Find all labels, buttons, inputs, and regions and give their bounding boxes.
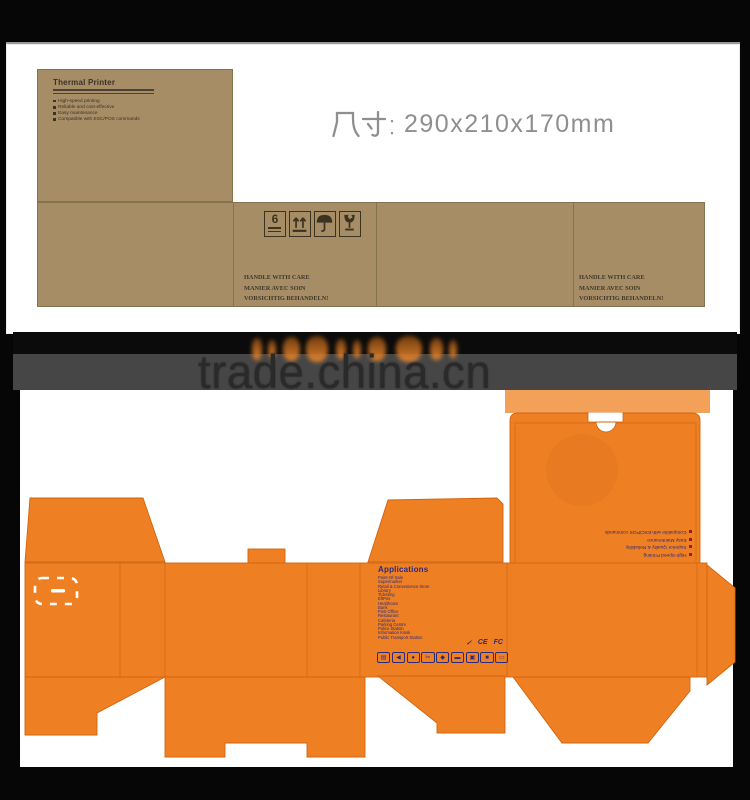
icon-glyph: ● — [411, 655, 415, 661]
square-bullet-icon — [53, 100, 56, 103]
top-left-flap — [25, 498, 165, 562]
feature-label: Reliable and cost-effective — [58, 105, 114, 110]
care-text-block: HANDLE WITH CARE MANIER AVEC SOIN VORSIC… — [579, 273, 679, 305]
icon-glyph: ■ — [485, 655, 489, 661]
panel-divider — [376, 203, 377, 306]
square-bullet-icon — [689, 530, 692, 533]
stacking-limit-number: 6 — [265, 212, 285, 226]
box-feature-label: Compatible with ESC/POS commands — [605, 529, 687, 534]
applications-list: Point-Of-Sale Supermarket Retail & Conve… — [378, 576, 508, 640]
kraft-top-panel: Thermal Printer High-speed printing Reli… — [37, 69, 233, 202]
icon-glyph: ▭ — [499, 655, 505, 661]
title-rule — [53, 93, 154, 94]
bottom-flap-a — [378, 676, 505, 733]
speaker-icon: ◀ — [392, 652, 405, 663]
scissors-icon: ✂ — [421, 652, 434, 663]
product-image: Thermal Printer High-speed printing Reli… — [0, 0, 750, 800]
fragile-icon — [339, 211, 361, 237]
feature-label: High-speed printing — [58, 99, 100, 104]
pen-icon: ◆ — [436, 652, 449, 663]
main-band — [25, 563, 707, 677]
thermal-feature-list: High-speed printing Reliable and cost-ef… — [53, 98, 140, 123]
square-bullet-icon — [53, 112, 56, 115]
fcc-mark: FC — [494, 639, 503, 647]
box-features-block-rotated: High-Speed Printing Superior Quality & R… — [580, 526, 692, 558]
size-label-cjk-glyphs — [332, 106, 398, 142]
square-bullet-icon — [53, 118, 56, 121]
feature-label: Compatible with ESC/POS commands — [58, 117, 140, 122]
lid-smudge — [546, 434, 618, 506]
care-line: HANDLE WITH CARE — [579, 273, 679, 284]
care-line: VORSICHTIG BEHANDELN! — [579, 294, 679, 305]
applications-block: Applications Point-Of-Sale Supermarket R… — [378, 565, 508, 640]
pos-receipt-icon: ▤ — [377, 652, 390, 663]
care-text-block: HANDLE WITH CARE MANIER AVEC SOIN VORSIC… — [244, 273, 344, 305]
care-line: MANIER AVEC SOIN — [244, 284, 344, 295]
box-feature-label: High-Speed Printing — [644, 552, 687, 557]
box-feature-row: High-Speed Printing — [580, 551, 692, 559]
application-icons-row: ▤ ◀ ● ✂ ◆ ▬ ▣ ■ ▭ — [377, 652, 508, 663]
title-rule — [53, 89, 154, 91]
stack-bar — [268, 231, 281, 233]
kraft-bottom-band: 6 — [37, 202, 705, 307]
care-line: MANIER AVEC SOIN — [579, 284, 679, 295]
box-feature-row: Easy Maintenance — [580, 536, 692, 544]
glue-flap — [707, 565, 735, 685]
box-feature-label: Easy Maintenance — [647, 537, 686, 542]
icon-glyph: ▤ — [381, 655, 387, 661]
square-bullet-icon — [689, 553, 692, 556]
icon-glyph: ▬ — [455, 655, 461, 661]
box-feature-row: Compatible with ESC/POS commands — [580, 528, 692, 536]
handling-icons-row: 6 — [264, 211, 361, 237]
size-value: 290x210x170mm — [404, 106, 615, 142]
bottom-left-flap — [25, 677, 165, 735]
orange-dieline-drawing — [0, 412, 750, 767]
orange-glow-strip — [505, 390, 710, 412]
panel-divider — [233, 203, 234, 306]
feature-row: Compatible with ESC/POS commands — [53, 117, 140, 123]
box-feature-row: Superior Quality & Reliability — [580, 543, 692, 551]
cash-register-icon: ▣ — [466, 652, 479, 663]
display-icon: ▭ — [495, 652, 508, 663]
square-bullet-icon — [689, 545, 692, 548]
panel-divider — [573, 203, 574, 306]
certification-marks: ✓ CE FC — [466, 639, 503, 647]
small-tab — [248, 549, 285, 563]
kraft-dieline-card: Thermal Printer High-speed printing Reli… — [6, 42, 740, 334]
top-middle-flap — [368, 498, 503, 562]
icon-glyph: ◀ — [396, 655, 401, 661]
square-bullet-icon — [689, 538, 692, 541]
icon-glyph: ▣ — [469, 655, 475, 661]
square-bullet-icon — [53, 106, 56, 109]
box-size-label: 290x210x170mm — [332, 106, 615, 142]
computer-icon: ■ — [480, 652, 493, 663]
care-line: VORSICHTIG BEHANDELN! — [244, 294, 344, 305]
printer-icon: ● — [407, 652, 420, 663]
stacking-limit-icon: 6 — [264, 211, 286, 237]
box-feature-label: Superior Quality & Reliability — [626, 544, 687, 549]
feature-label: Easy maintenance — [58, 111, 97, 116]
keep-dry-icon — [314, 211, 336, 237]
stack-bar — [268, 227, 281, 229]
thermal-printer-title: Thermal Printer — [53, 78, 115, 87]
monitor-icon: ▬ — [451, 652, 464, 663]
icon-glyph: ✂ — [425, 655, 430, 661]
icon-glyph: ◆ — [440, 655, 445, 661]
watermark-band: trade.china.cn — [0, 332, 750, 412]
check-mark: ✓ — [466, 639, 472, 647]
this-way-up-icon — [289, 211, 311, 237]
watermark-text: trade.china.cn — [198, 348, 491, 395]
care-line: HANDLE WITH CARE — [244, 273, 344, 284]
bottom-middle-panel — [165, 677, 365, 757]
applications-title: Applications — [378, 565, 508, 574]
ce-mark: CE — [478, 639, 488, 647]
bottom-flap-b — [513, 677, 690, 743]
